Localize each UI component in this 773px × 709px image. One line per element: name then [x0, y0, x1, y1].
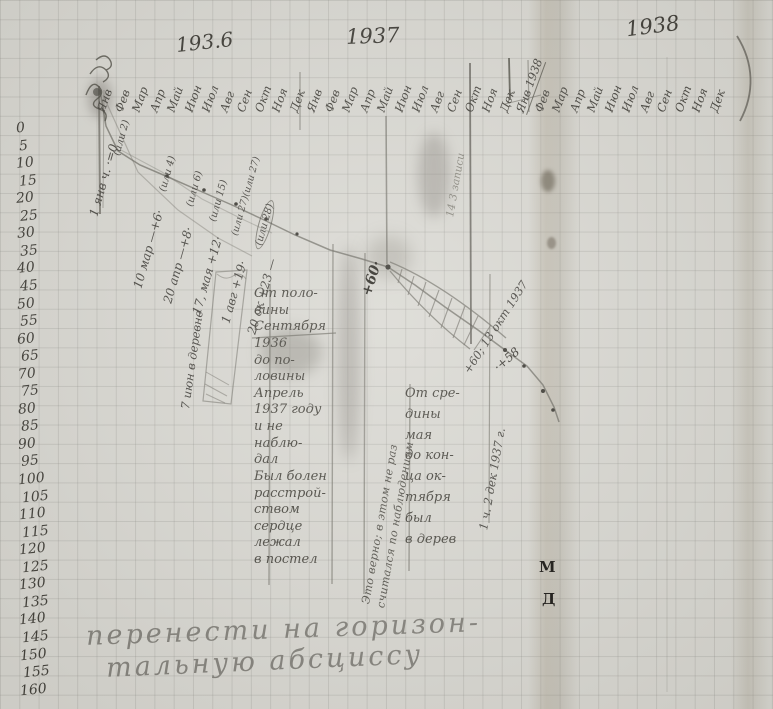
scanned-notebook-page: 0510152025303540455055606570758085909510… — [0, 0, 773, 709]
paper-vignette — [0, 0, 773, 709]
